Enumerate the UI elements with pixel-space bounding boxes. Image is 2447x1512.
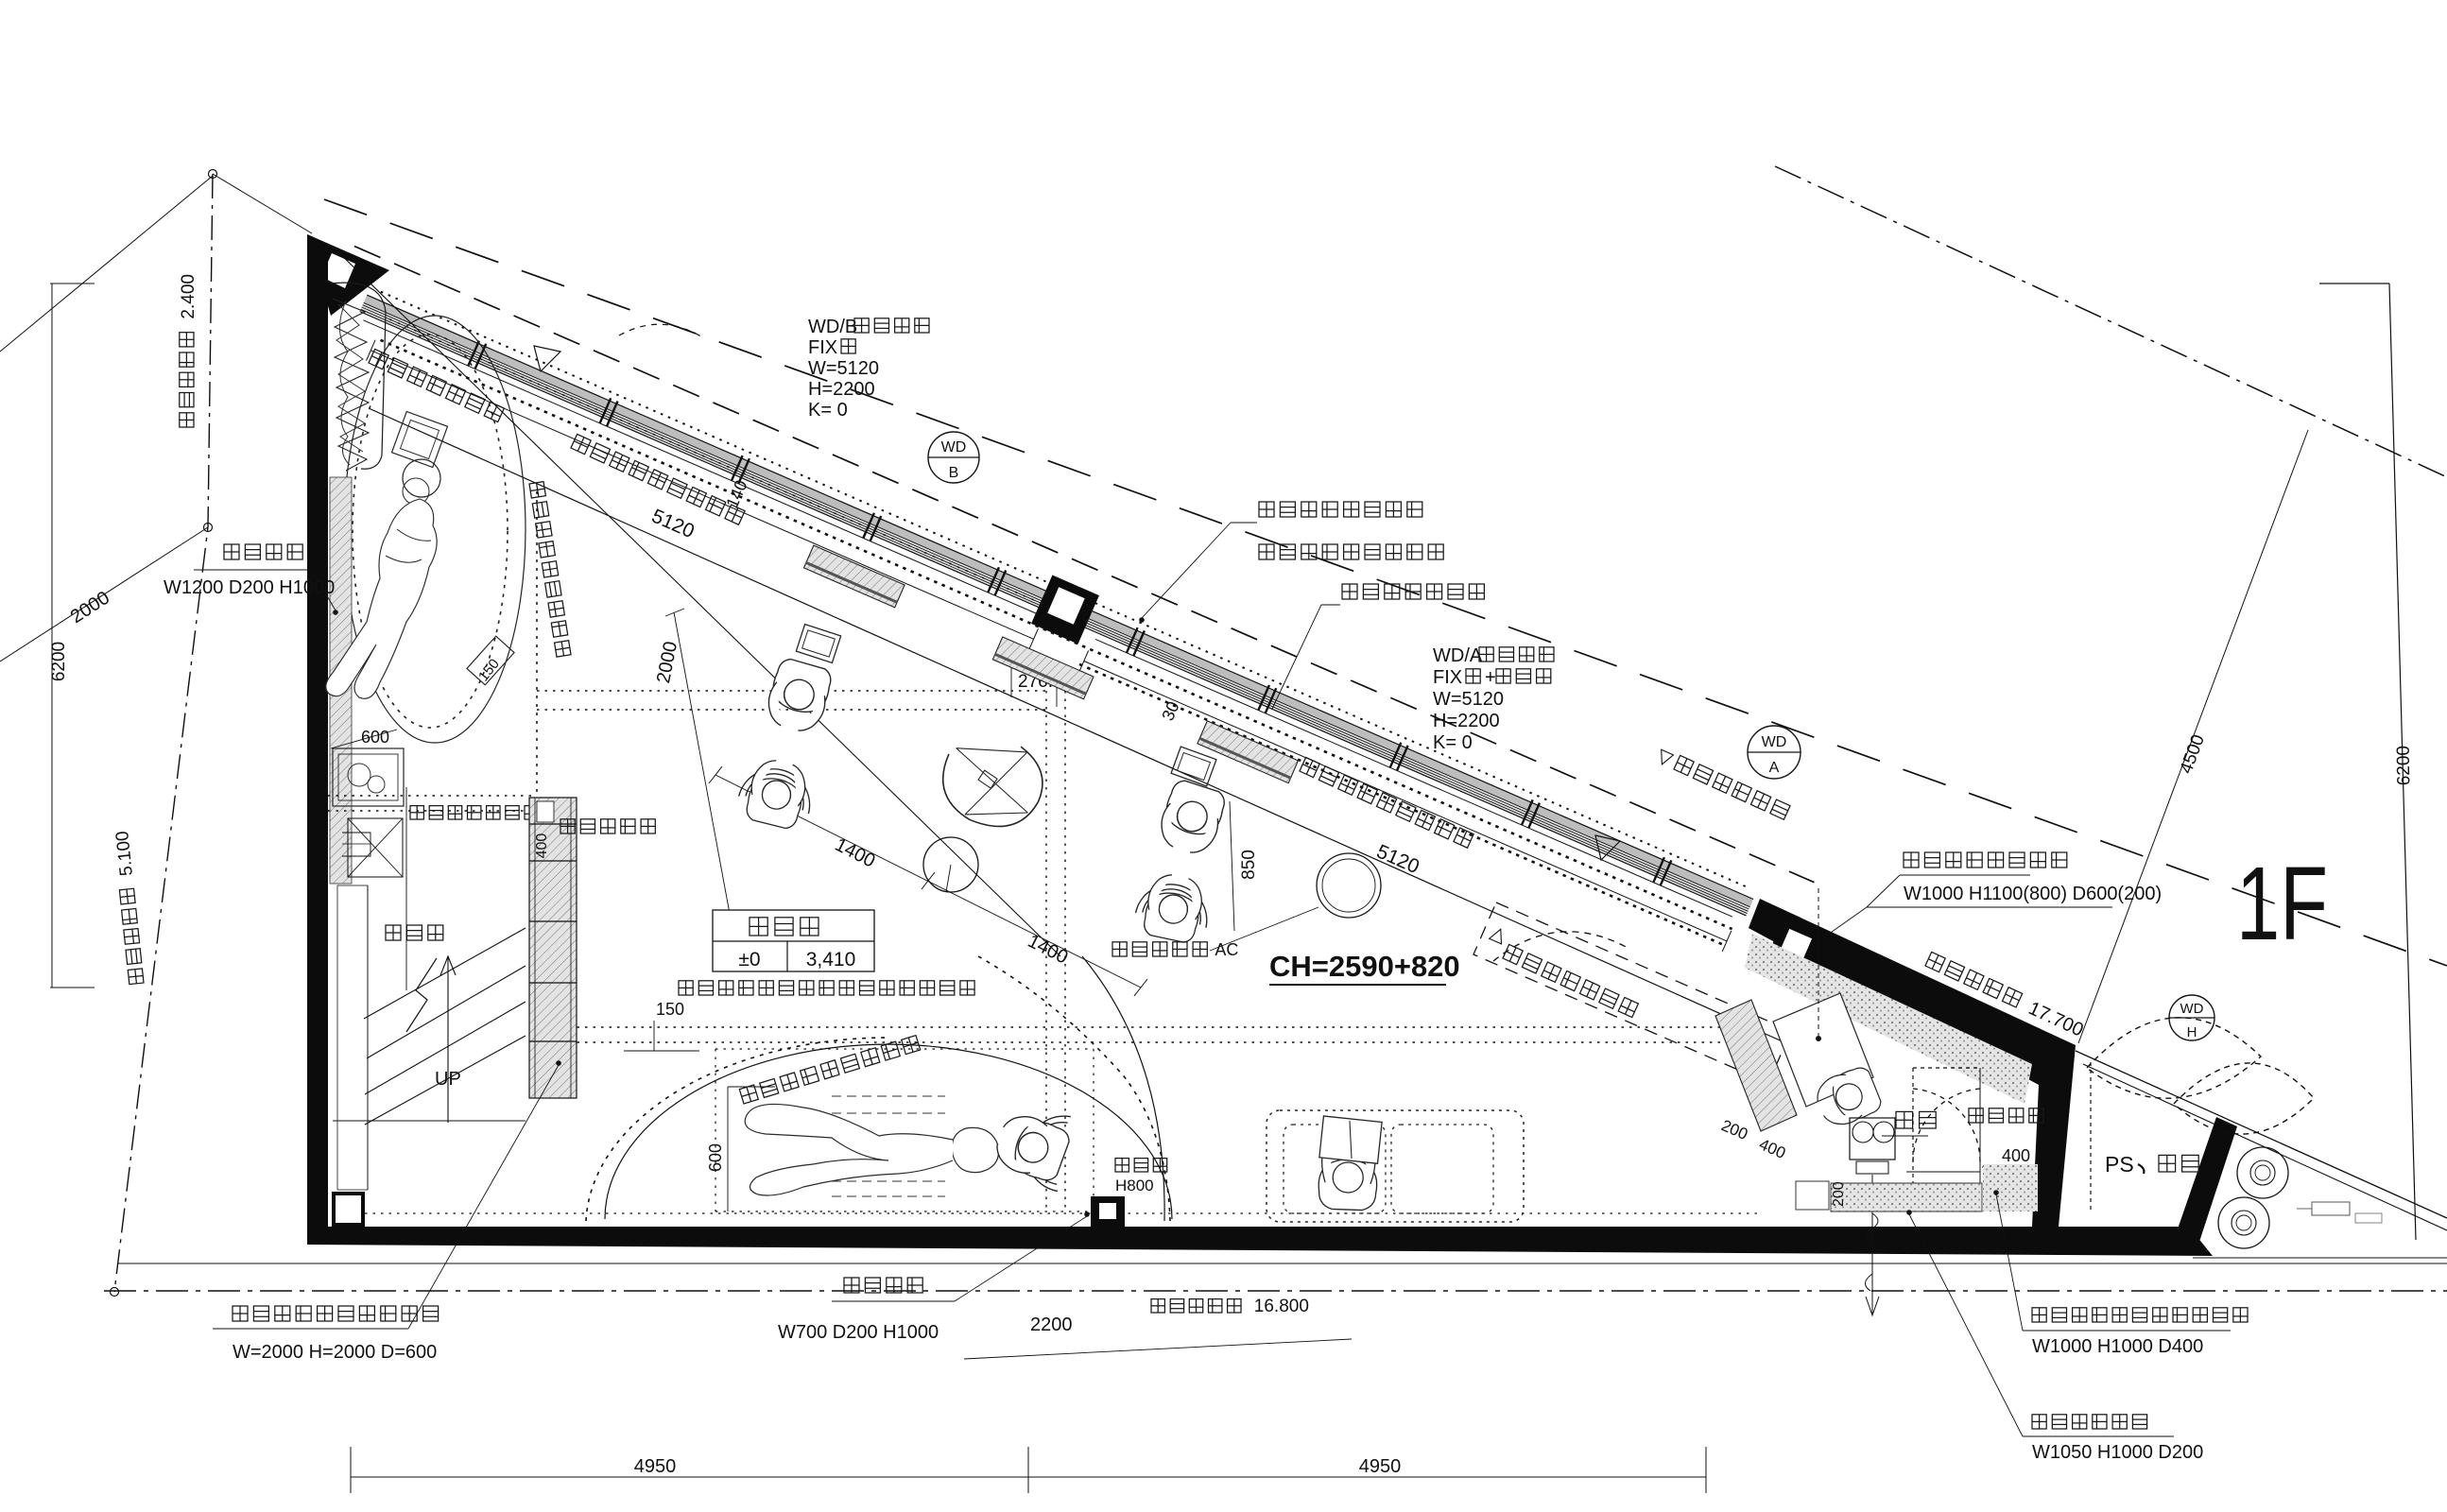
svg-text:±0: ±0 — [738, 949, 760, 971]
svg-text:400: 400 — [2002, 1146, 2030, 1165]
svg-text:150: 150 — [656, 1000, 684, 1019]
svg-text:WD: WD — [1762, 734, 1787, 750]
svg-text:200: 200 — [1831, 1181, 1847, 1207]
svg-text:600: 600 — [361, 728, 389, 747]
svg-text:CH=2590+820: CH=2590+820 — [1269, 950, 1460, 983]
svg-text:2200: 2200 — [1030, 1314, 1073, 1335]
svg-text:16.800: 16.800 — [1254, 1297, 1309, 1316]
svg-text:WD/B: WD/B — [808, 317, 857, 337]
svg-text:W=2000 H=2000 D=600: W=2000 H=2000 D=600 — [233, 1342, 437, 1363]
svg-text:W1000 H1100(800) D600(200): W1000 H1100(800) D600(200) — [1904, 884, 2162, 904]
svg-text:W1200 D200 H1000: W1200 D200 H1000 — [164, 577, 335, 598]
svg-text:PS: PS — [2105, 1152, 2134, 1177]
svg-text:W1050 H1000 D200: W1050 H1000 D200 — [2032, 1442, 2203, 1463]
svg-text:1F: 1F — [2236, 846, 2328, 962]
svg-text:W1000 H1000 D400: W1000 H1000 D400 — [2032, 1336, 2203, 1357]
svg-text:W=5120: W=5120 — [808, 358, 879, 379]
svg-text:W700 D200 H1000: W700 D200 H1000 — [778, 1322, 939, 1343]
svg-text:WD: WD — [2180, 1001, 2204, 1017]
svg-text:FIX: FIX — [808, 337, 837, 358]
svg-text:WD: WD — [941, 439, 967, 455]
svg-text:+: + — [1485, 667, 1496, 688]
svg-text:6200: 6200 — [49, 642, 69, 681]
svg-text:4950: 4950 — [1359, 1456, 1402, 1477]
svg-text:W=5120: W=5120 — [1433, 689, 1504, 710]
svg-text:850: 850 — [1239, 850, 1259, 880]
svg-text:H: H — [2187, 1024, 2197, 1040]
svg-text:WD/A: WD/A — [1433, 645, 1483, 666]
svg-text:A: A — [1769, 760, 1780, 776]
svg-text:K= 0: K= 0 — [1433, 732, 1473, 753]
svg-text:FIX: FIX — [1433, 667, 1462, 688]
svg-text:6200: 6200 — [2394, 746, 2415, 786]
svg-text:4950: 4950 — [634, 1456, 677, 1477]
svg-text:UP: UP — [435, 1069, 461, 1090]
svg-text:AC: AC — [1215, 940, 1238, 959]
svg-text:B: B — [949, 465, 959, 481]
svg-text:H800: H800 — [1115, 1177, 1154, 1194]
svg-text:H=2200: H=2200 — [1433, 711, 1500, 731]
svg-text:400: 400 — [534, 833, 550, 859]
svg-text:H=2200: H=2200 — [808, 379, 875, 400]
svg-text:600: 600 — [706, 1143, 725, 1172]
svg-text:3,410: 3,410 — [806, 949, 856, 971]
svg-text:K= 0: K= 0 — [808, 400, 848, 421]
svg-text:2.400: 2.400 — [179, 274, 198, 319]
